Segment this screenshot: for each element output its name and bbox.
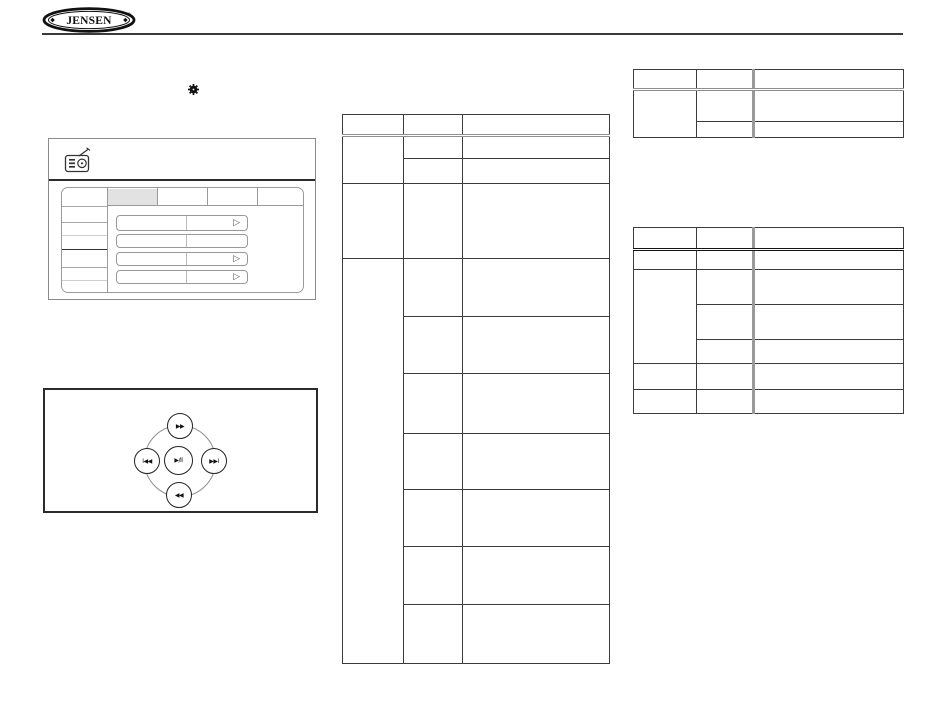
table-cell bbox=[404, 136, 463, 159]
table-header-cell bbox=[697, 228, 754, 250]
settings-menu-panel: ▷ ▷ ▷ bbox=[61, 187, 304, 293]
table-header-cell bbox=[754, 70, 904, 90]
table-cell bbox=[463, 490, 610, 547]
table-cell bbox=[463, 434, 610, 490]
table-cell bbox=[404, 184, 463, 259]
table-cell bbox=[634, 364, 697, 390]
screen-divider-line bbox=[49, 179, 315, 181]
table-cell bbox=[634, 250, 697, 270]
table-cell bbox=[754, 90, 904, 122]
table-cell bbox=[754, 305, 904, 340]
table-header-cell bbox=[634, 70, 697, 90]
table-header-cell bbox=[463, 115, 610, 136]
table-cell bbox=[404, 547, 463, 605]
table-cell bbox=[634, 390, 697, 414]
table-cell bbox=[404, 434, 463, 490]
table-cell bbox=[404, 259, 463, 317]
chevron-right-icon: ▷ bbox=[233, 272, 240, 281]
sidebar-row-divider bbox=[62, 280, 107, 281]
table-cell bbox=[697, 340, 754, 364]
table-cell bbox=[343, 136, 404, 184]
table-cell bbox=[697, 364, 754, 390]
right-upper-table bbox=[633, 69, 904, 138]
option-row-divider bbox=[186, 235, 187, 247]
table-header-cell bbox=[634, 228, 697, 250]
option-row-divider bbox=[186, 271, 187, 283]
play-pause-button-icon: ▶/II bbox=[164, 446, 193, 475]
tabbar-underline bbox=[107, 205, 303, 206]
previous-track-button-icon: I◀◀ bbox=[134, 448, 160, 474]
table-cell bbox=[697, 122, 754, 138]
table-cell bbox=[404, 317, 463, 374]
playback-controls-figure: ▶▶ I◀◀ ▶/II ▶▶I ◀◀ bbox=[43, 388, 318, 513]
table-header-cell bbox=[343, 115, 404, 136]
table-cell bbox=[404, 159, 463, 184]
table-cell bbox=[404, 605, 463, 664]
fast-forward-glyph: ▶▶ bbox=[176, 423, 184, 430]
table-cell bbox=[697, 270, 754, 305]
table-cell bbox=[463, 605, 610, 664]
tab-divider bbox=[257, 188, 258, 205]
table-cell bbox=[404, 374, 463, 434]
logo-text: JENSEN bbox=[66, 15, 112, 27]
active-tab bbox=[108, 189, 157, 205]
option-row: ▷ bbox=[116, 270, 248, 284]
table-cell bbox=[463, 547, 610, 605]
play-pause-glyph: ▶/II bbox=[174, 457, 182, 464]
table-cell bbox=[343, 259, 404, 664]
table-cell bbox=[697, 305, 754, 340]
table-cell bbox=[697, 390, 754, 414]
radio-icon bbox=[62, 146, 92, 174]
table-cell bbox=[343, 184, 404, 259]
table-cell bbox=[754, 390, 904, 414]
table-cell bbox=[463, 159, 610, 184]
tab-divider bbox=[207, 188, 208, 205]
rewind-glyph: ◀◀ bbox=[175, 492, 183, 499]
table-cell bbox=[463, 317, 610, 374]
table-cell bbox=[754, 270, 904, 305]
rewind-button-icon: ◀◀ bbox=[166, 482, 192, 508]
table-cell bbox=[463, 136, 610, 159]
sidebar-row-divider bbox=[62, 206, 107, 207]
next-track-button-icon: ▶▶I bbox=[201, 448, 227, 474]
table-cell bbox=[754, 340, 904, 364]
table-cell bbox=[754, 122, 904, 138]
main-function-table bbox=[342, 114, 610, 664]
table-cell bbox=[697, 90, 754, 122]
jensen-logo: JENSEN ® bbox=[42, 7, 136, 33]
table-header-cell bbox=[697, 70, 754, 90]
right-lower-table bbox=[633, 227, 904, 414]
sidebar-row-divider bbox=[62, 235, 107, 236]
sidebar-row-divider bbox=[62, 267, 107, 268]
table-cell bbox=[634, 270, 697, 364]
tab-divider bbox=[157, 188, 158, 205]
table-cell bbox=[634, 90, 697, 138]
table-cell bbox=[463, 259, 610, 317]
table-header-cell bbox=[404, 115, 463, 136]
table-cell bbox=[754, 364, 904, 390]
table-cell bbox=[463, 184, 610, 259]
option-row bbox=[116, 234, 248, 248]
option-row: ▷ bbox=[116, 252, 248, 266]
previous-track-glyph: I◀◀ bbox=[142, 458, 152, 465]
option-row: ▷ bbox=[116, 215, 248, 231]
table-cell bbox=[463, 374, 610, 434]
chevron-right-icon: ▷ bbox=[233, 218, 240, 227]
next-track-glyph: ▶▶I bbox=[209, 458, 219, 465]
manual-page: JENSEN ® bbox=[0, 0, 950, 725]
table-cell bbox=[754, 250, 904, 270]
sidebar-row-divider bbox=[62, 249, 107, 250]
gear-icon bbox=[187, 83, 200, 96]
settings-screen-figure: ▷ ▷ ▷ bbox=[48, 138, 316, 300]
table-cell bbox=[404, 490, 463, 547]
option-row-divider bbox=[186, 253, 187, 265]
table-cell bbox=[697, 250, 754, 270]
table-header-cell bbox=[754, 228, 904, 250]
sidebar-divider bbox=[107, 188, 108, 292]
option-row-divider bbox=[186, 216, 187, 230]
chevron-right-icon: ▷ bbox=[233, 254, 240, 263]
fast-forward-button-icon: ▶▶ bbox=[167, 413, 193, 439]
header-rule bbox=[42, 33, 903, 35]
sidebar-row-divider bbox=[62, 222, 107, 223]
